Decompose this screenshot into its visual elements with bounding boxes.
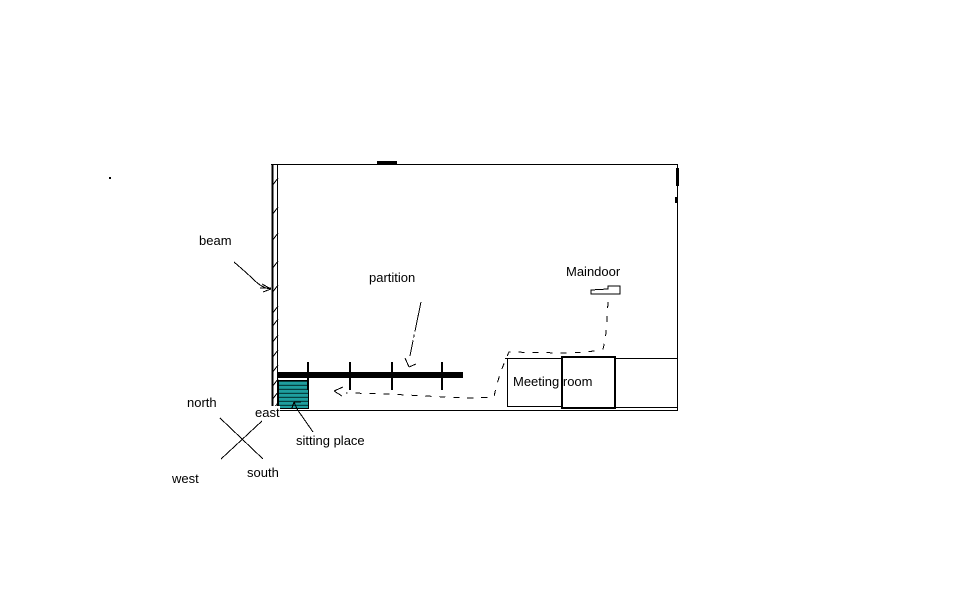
compass-east-label: east xyxy=(255,406,280,419)
compass-south-label: south xyxy=(247,466,279,479)
partition-label: partition xyxy=(369,271,415,284)
beam-arrow xyxy=(234,262,271,292)
compass-north-label: north xyxy=(187,396,217,409)
compass-cross xyxy=(220,418,263,459)
main-door-symbol xyxy=(591,286,620,294)
partition-bar xyxy=(278,362,463,390)
sitting-place-label: sitting place xyxy=(296,434,365,447)
beam-label: beam xyxy=(199,234,232,247)
partition-arrow xyxy=(405,302,421,367)
maindoor-label: Maindoor xyxy=(566,265,620,278)
meeting-room-label: Meeting room xyxy=(513,375,592,388)
paint-drawing-canvas: beam partition Maindoor Meeting room sit… xyxy=(0,0,955,591)
floor-plan-linework xyxy=(0,0,955,591)
compass-west-label: west xyxy=(172,472,199,485)
stray-dot xyxy=(109,177,111,179)
sitting-place-arrow xyxy=(292,402,313,432)
